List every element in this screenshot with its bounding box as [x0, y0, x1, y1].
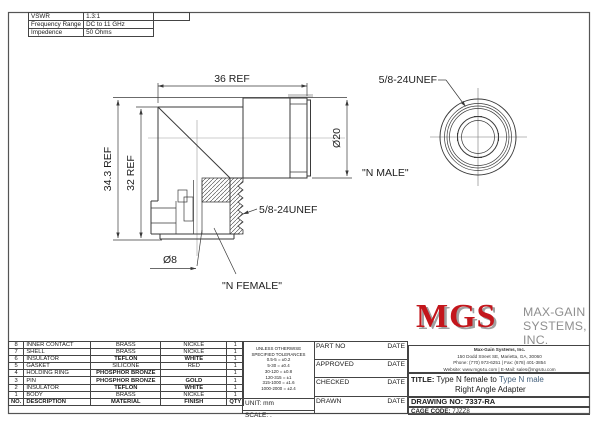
part-material: BRASS: [91, 391, 161, 398]
part-no: 5: [9, 363, 24, 370]
dim-dia-20: Ø20: [331, 128, 343, 148]
date-label: DATE: [387, 361, 405, 368]
parts-row: 4 HOLDING RING PHOSPHOR BRONZE 1: [9, 370, 244, 377]
unit-value: mm: [263, 400, 274, 407]
approval-row-drawn: DRAWN DATE: [314, 397, 407, 414]
approval-row-checked: CHECKED DATE: [314, 378, 407, 396]
part-material: PHOSPHOR BRONZE: [91, 370, 161, 377]
part-description: INNER CONTACT: [24, 342, 91, 349]
part-finish: NICKLE: [161, 342, 227, 349]
parts-row: 8 INNER CONTACT BRASS NICKLE 1: [9, 342, 244, 349]
scale-label: SCALE:: [245, 412, 268, 419]
title-text: Type N female to: [436, 375, 496, 384]
dim-dia-8: Ø8: [163, 254, 177, 266]
thread-callout-right: 5/8-24UNEF: [379, 74, 437, 86]
part-no: 6: [9, 356, 24, 363]
adapter-body-outline: [151, 94, 313, 239]
drawing-number-row: DRAWING NO: 7337-RA: [408, 397, 590, 407]
date-label: DATE: [387, 398, 405, 405]
part-no: 7: [9, 349, 24, 356]
part-finish: WHITE: [161, 384, 227, 391]
date-label: DATE: [387, 379, 405, 386]
part-no: 1: [9, 391, 24, 398]
parts-table: 8 INNER CONTACT BRASS NICKLE 1 7 SHELL B…: [8, 341, 244, 406]
unit-label: UNIT:: [245, 400, 261, 407]
unit-row: UNIT: mm: [243, 398, 314, 410]
approval-label: PART NO: [316, 343, 345, 350]
scale-row: SCALE: .: [243, 410, 314, 422]
approval-label: CHECKED: [316, 379, 349, 386]
end-view-figure: 5/8-24UNEF "N MALE": [362, 74, 527, 186]
cage-code-row: CAGE CODE: 7JZZ8: [408, 407, 590, 416]
part-no: 2: [9, 384, 24, 391]
drawing-sheet: 36 REF 34.3 REF 32 REF Ø20 Ø8 5/8-24UNEF…: [0, 0, 600, 423]
parts-header-row: NO. DESCRIPTION MATERIAL FINISH QTY: [9, 398, 244, 405]
date-label: DATE: [387, 343, 405, 350]
female-thread-section: [230, 178, 243, 234]
spec-label: Impedence: [29, 29, 84, 37]
part-material: TEFLON: [91, 356, 161, 363]
part-material: TEFLON: [91, 384, 161, 391]
drawing-no-label: DRAWING NO:: [411, 397, 463, 406]
part-description: HOLDING RING: [24, 370, 91, 377]
part-finish: RED: [161, 363, 227, 370]
part-description: GASKET: [24, 363, 91, 370]
spec-value: DC to 11 GHz: [84, 21, 154, 29]
title-line2: Right Angle Adapter: [455, 385, 588, 395]
cross-section-hatch: [202, 178, 230, 202]
gasket-strip: [288, 94, 313, 98]
dim-36-ref: 36 REF: [214, 73, 250, 85]
company-name-line1: MAX-GAIN: [523, 305, 585, 319]
cage-code-label: CAGE CODE:: [411, 408, 451, 415]
part-material: SILICONE: [91, 363, 161, 370]
thread-callout-left: 5/8-24UNEF: [259, 204, 317, 216]
part-finish: [161, 370, 227, 377]
header-finish: FINISH: [161, 398, 227, 405]
part-no: 4: [9, 370, 24, 377]
part-finish: WHITE: [161, 356, 227, 363]
title-label: TITLE:: [411, 375, 434, 384]
spec-table-empty-cell: [147, 12, 190, 21]
n-female-label: "N FEMALE": [222, 280, 282, 292]
parts-row: 1 BODY BRASS NICKLE 1: [9, 391, 244, 398]
part-description: INSULATOR: [24, 384, 91, 391]
spec-row-impedance: Impedence 50 Ohms: [29, 29, 154, 37]
tolerance-notes: UNLESS OTHERWISE SPECIFIED TOLERANCES 0.…: [243, 342, 314, 398]
part-description: BODY: [24, 391, 91, 398]
title-text-link: Type N male: [499, 375, 544, 384]
part-material: BRASS: [91, 349, 161, 356]
dim-32-ref: 32 REF: [125, 155, 137, 191]
mgs-logo-text: MGS: [416, 298, 496, 336]
title-box: TITLE: Type N female to Type N male Righ…: [408, 373, 590, 397]
n-male-label: "N MALE": [362, 167, 409, 179]
part-description: PIN: [24, 377, 91, 384]
part-no: 8: [9, 342, 24, 349]
tolerance-block: UNLESS OTHERWISE SPECIFIED TOLERANCES 0.…: [242, 341, 315, 414]
header-material: MATERIAL: [91, 398, 161, 405]
part-finish: GOLD: [161, 377, 227, 384]
company-name-line2: SYSTEMS, INC.: [523, 319, 590, 347]
part-description: INSULATOR: [24, 356, 91, 363]
part-finish: NICKLE: [161, 349, 227, 356]
spec-label: VSWR: [29, 13, 84, 21]
approval-row-approved: APPROVED DATE: [314, 360, 407, 378]
tolerance-line: 1000-2000 = ±2.4: [243, 386, 314, 392]
parts-row: 7 SHELL BRASS NICKLE 1: [9, 349, 244, 356]
title-line1: TITLE: Type N female to Type N male: [411, 375, 588, 385]
spec-label: Frequency Range: [29, 21, 84, 29]
dim-34-3-ref: 34.3 REF: [102, 147, 114, 191]
parts-row: 6 INSULATOR TEFLON WHITE 1: [9, 356, 244, 363]
scale-value: .: [270, 412, 272, 419]
parts-row: 2 INSULATOR TEFLON WHITE 1: [9, 384, 244, 391]
part-material: BRASS: [91, 342, 161, 349]
spec-row-vswr: VSWR 1.3:1: [29, 13, 154, 21]
company-address-box: Max-Gain Systems, Inc. 150 Dodd Street S…: [408, 345, 590, 373]
centerlines: [148, 120, 345, 256]
parts-row: 5 GASKET SILICONE RED 1: [9, 363, 244, 370]
approval-row-part-no: PART NO DATE: [314, 342, 407, 360]
part-finish: NICKLE: [161, 391, 227, 398]
spec-value: 50 Ohms: [84, 29, 154, 37]
cage-code-value: 7JZZ8: [452, 408, 470, 415]
company-logo: MGS MAX-GAIN SYSTEMS, INC.: [412, 298, 590, 340]
contact-detail: [184, 197, 193, 221]
drawing-no-value: 7337-RA: [465, 397, 495, 406]
approval-label: APPROVED: [316, 361, 354, 368]
part-material: PHOSPHOR BRONZE: [91, 377, 161, 384]
spec-row-frequency: Frequency Range DC to 11 GHz: [29, 21, 154, 29]
spec-table: VSWR 1.3:1 Frequency Range DC to 11 GHz …: [28, 12, 154, 37]
part-description: SHELL: [24, 349, 91, 356]
parts-row: 3 PIN PHOSPHOR BRONZE GOLD 1: [9, 377, 244, 384]
approval-label: DRAWN: [316, 398, 341, 405]
insulator-detail: [178, 190, 187, 202]
spec-value: 1.3:1: [84, 13, 154, 21]
header-description: DESCRIPTION: [24, 398, 91, 405]
header-no: NO.: [9, 398, 24, 405]
part-no: 3: [9, 377, 24, 384]
approvals-block: PART NO DATE APPROVED DATE CHECKED DATE …: [314, 341, 408, 414]
side-view-figure: 36 REF 34.3 REF 32 REF Ø20 Ø8 5/8-24UNEF…: [102, 73, 352, 292]
